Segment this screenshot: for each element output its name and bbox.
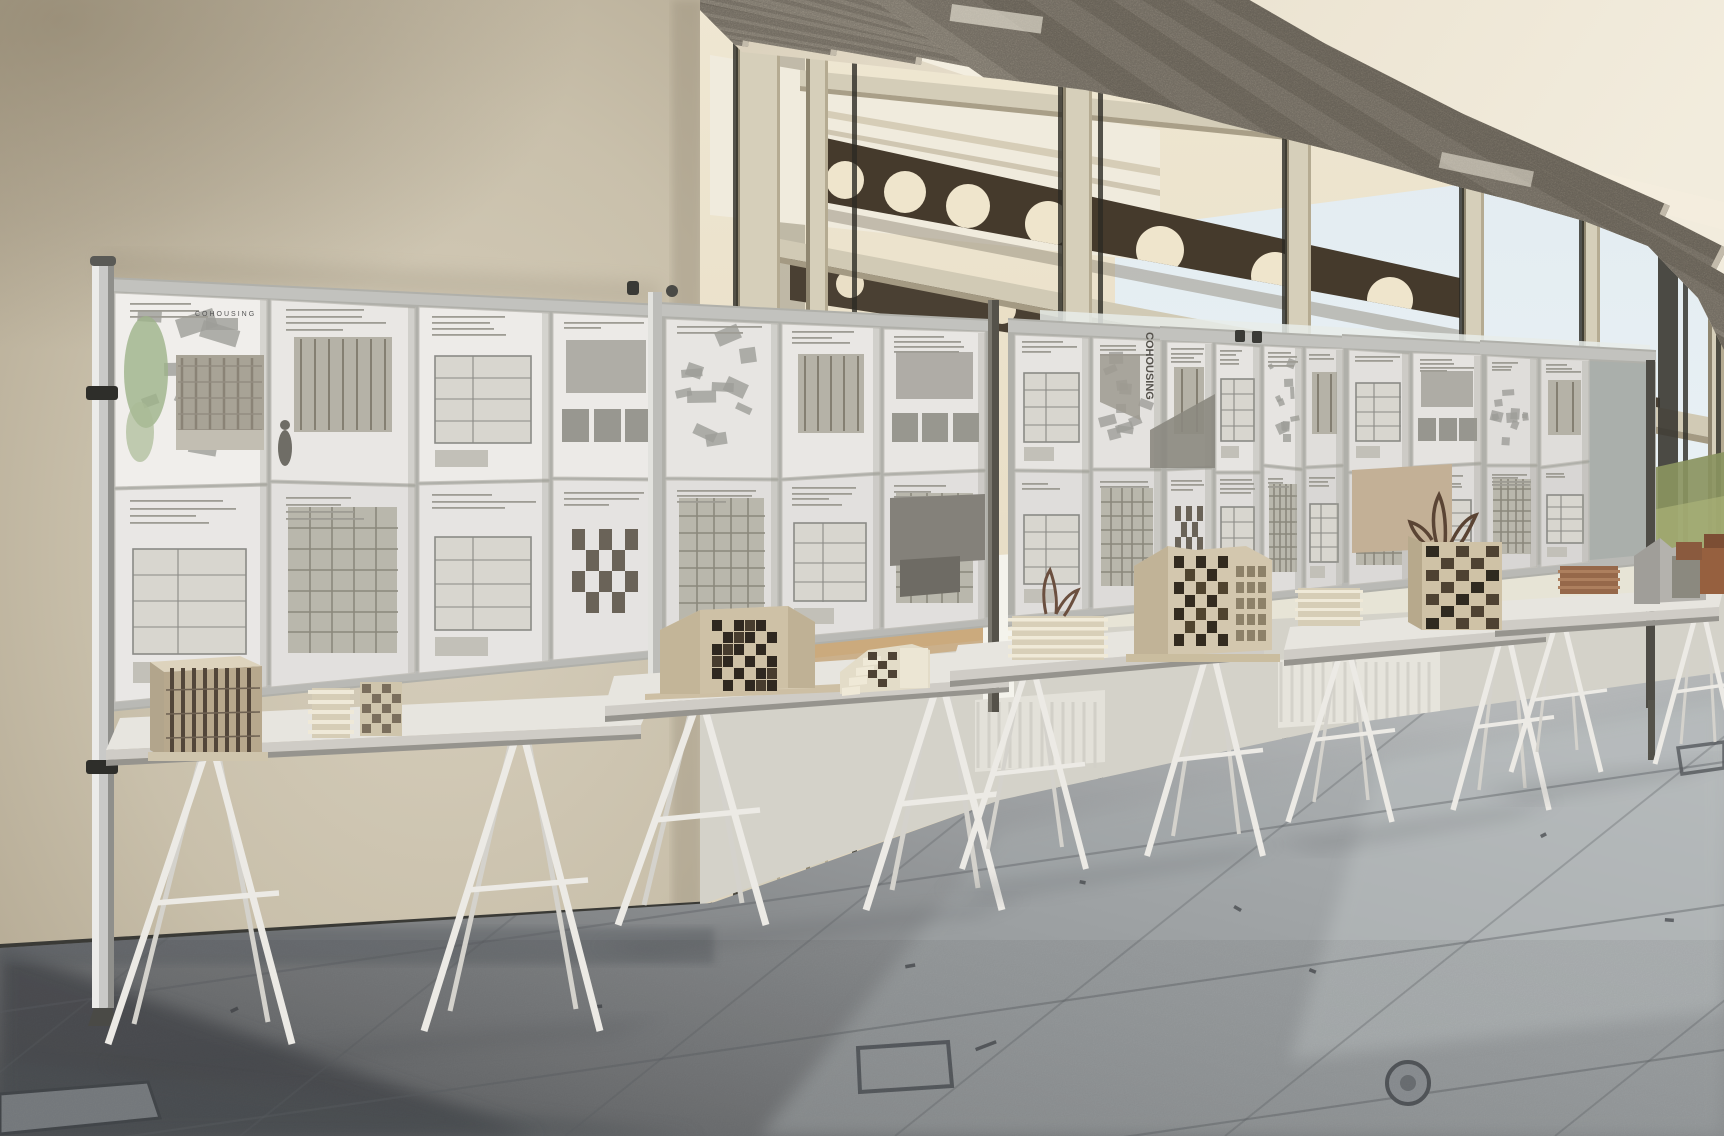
- svg-text:COHOUSING: COHOUSING: [195, 311, 256, 318]
- svg-text:COHOUSING: COHOUSING: [1143, 332, 1155, 400]
